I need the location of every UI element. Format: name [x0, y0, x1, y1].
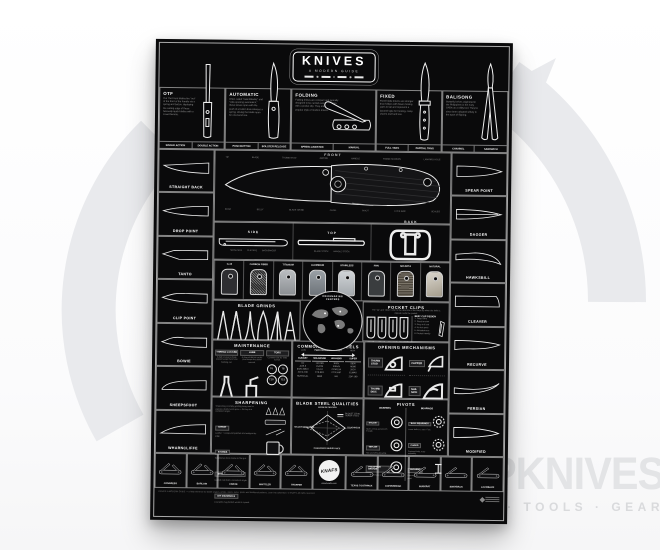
blade-silhouette-icon	[162, 193, 210, 229]
pivot-item-icon	[390, 416, 403, 429]
grind-cross-section-icon	[256, 310, 270, 342]
knife-type-illustration-icon	[315, 96, 373, 137]
slipjoint-knife-icon	[474, 458, 501, 487]
view-illustration-icon	[295, 236, 369, 250]
anatomy-label: EDGE	[225, 209, 231, 211]
pattern-label: SWAYBACK	[450, 486, 463, 489]
blade-shape-label: RECURVE	[467, 363, 487, 367]
blade-shape-cell: HAWKSBILL	[450, 239, 507, 283]
knife-type-panel: AUTOMATIC Often called "switchblades" an…	[225, 88, 292, 151]
knives-poster: KNIVES A MODERN GUIDE OTF Out The Front …	[150, 39, 513, 524]
maintenance-item: TORX Common bits for knife screws. T6T8T…	[265, 350, 289, 398]
mechanism-label: NAIL NICK	[408, 386, 420, 396]
view-note: CLIP SIDE	[247, 250, 257, 252]
blade-silhouette-icon	[159, 410, 207, 446]
traditional-patterns-row: CONGRESS BARLOW	[154, 453, 503, 492]
blade-shape-label: SHEEPSFOOT	[170, 403, 198, 407]
steel-names: S30VS35VNCPM-154CTS-XHPM4	[328, 362, 344, 379]
blade-silhouette-icon	[160, 367, 208, 403]
knife-type-tag: SPRING ASSISTED	[292, 144, 333, 150]
pocket-clip-icon	[376, 316, 387, 340]
pattern-label: WHITTLER	[259, 484, 271, 487]
blade-shape-label: DAGGER	[470, 233, 488, 237]
blade-silhouette-icon	[452, 371, 500, 407]
slipjoint-knife-icon	[220, 455, 247, 484]
slipjoint-knife-icon	[157, 454, 184, 483]
knife-type-illustration-icon	[411, 59, 438, 143]
pattern-cell: CANOE	[218, 454, 250, 489]
steel-names: 14C28N154CMVG-10CTS-BD1N690	[312, 362, 328, 379]
blade-shape-cell: CLEAVER	[449, 283, 506, 327]
fine-print: KNIVES: A MODERN GUIDE — a field referen…	[158, 491, 499, 507]
knife-type-illustration-icon	[194, 56, 221, 140]
blade-shape-cell: WHARNCLIFFE	[155, 409, 212, 453]
qualities-radar: EDGE RETENTION TOUGHNESS CORROSION RESIS…	[292, 406, 363, 451]
steel-name: N690	[312, 375, 328, 378]
handle-material-label: STAINLESS	[340, 264, 353, 269]
pocket-clip-icon	[387, 316, 398, 340]
sharpening-rod-icon	[264, 428, 286, 436]
legend-super-steel: SUPER STEEL	[345, 415, 359, 417]
maintenance-item: THREAD LOCKER A dab on pivot & body scre…	[215, 349, 239, 397]
anatomy-label: SCALES	[431, 211, 440, 213]
knife-anatomy-panel: FRONT TIPBLADETHUMB STUDJIMPINGHANDLEFRA…	[214, 150, 452, 225]
axis-toughness: TOUGHNESS	[347, 427, 360, 429]
knife-type-tags: PUSH BUTTON BOLSTER RELEASE	[226, 142, 290, 150]
sharpening-intro: Sharpening is simply grinding away steel…	[215, 406, 260, 414]
blade-shape-label: STRAIGHT BACK	[169, 185, 203, 189]
handle-material-label: TITANIUM	[282, 263, 293, 268]
slipjoint-knife-icon	[283, 455, 310, 484]
view-illustration-icon	[374, 225, 448, 263]
steel-column: SUPER S90VM39020CVELMAXZDP-189	[345, 358, 361, 379]
anatomy-label: PIVOT	[362, 210, 369, 212]
pattern-cell: BARLOW	[186, 453, 218, 488]
pattern-cell: TRAPPER	[281, 454, 313, 489]
blade-silhouette-icon	[452, 414, 500, 450]
knife-type-panel: OTF Out The Front blades fire "out" of t…	[159, 87, 226, 150]
pocket-clip-icon	[365, 316, 376, 340]
anatomy-label: LANYARD HOLE	[424, 159, 441, 161]
steel-qualities-panel: BLADE STEEL QUALITIES EDGE RETENTION TOU…	[291, 398, 364, 456]
grind-cross-section-icon	[283, 310, 297, 342]
cost-arrow: LOW HIGH	[301, 353, 355, 358]
blade-shape-label: TANTO	[178, 272, 192, 276]
blade-shape-label: HAWKSBILL	[466, 276, 490, 280]
blade-shape-label: CLIP POINT	[173, 316, 196, 320]
map-cell: KNIFEMAKINGCENTERS	[300, 301, 362, 342]
torx-sizes: T6T8T10T15	[265, 364, 289, 386]
folding-knife-illustration	[219, 158, 449, 211]
handle-scale-swatch	[397, 271, 414, 297]
knife-type-tags: SPRING ASSISTED MANUAL	[292, 143, 375, 151]
handle-material: FRN	[361, 262, 391, 300]
steel-column: HIGH-END S30VS35VNCPM-154CTS-XHPM4	[328, 358, 344, 379]
patterns-right: TEXAS TOOTHPICK COPPERHEAD	[346, 455, 504, 492]
handle-material: CARBON FIBER	[243, 261, 273, 299]
pivots-panel: PIVOTS WASHERS NYLON Quiet, cheap and	[363, 398, 449, 456]
pattern-cell: LOCKBACK	[472, 457, 504, 492]
handle-scale-swatch	[367, 270, 384, 296]
anatomy-label: FRAME SCREWS	[383, 158, 401, 160]
pattern-cell: WHITTLER	[249, 454, 281, 489]
anatomy-label: TIP	[225, 156, 228, 158]
handle-material: TITANIUM	[273, 261, 303, 299]
slipjoint-knife-icon	[348, 456, 375, 485]
maker-mark-icon	[480, 496, 500, 503]
knife-type-description: Fixed blade knives are stronger than fol…	[380, 100, 414, 117]
pivot-item-icon	[390, 439, 403, 452]
knife-type-tags: CHANNEL SANDWICH	[443, 144, 507, 152]
anatomy-label: HANDLE	[351, 158, 360, 160]
view-note: BACKSPACER	[262, 251, 276, 253]
sharpening-icons	[263, 406, 288, 457]
maintenance-item-name: TORX	[266, 350, 289, 356]
view-label: SIDE	[248, 230, 260, 234]
arrow-low-label: LOW	[301, 350, 306, 352]
blade-shape-cell: BOWIE	[156, 323, 213, 367]
pivot-item-name: BALL BEARINGS	[408, 422, 431, 427]
blade-shape-cell: PERSIAN	[448, 370, 505, 414]
pattern-cell: CONGRESS	[154, 453, 186, 488]
blade-silhouette-icon	[453, 327, 501, 363]
pivot-item: NYLON Quiet, cheap and smooth enough.	[366, 410, 403, 433]
blade-shape-cell: SPEAR POINT	[451, 152, 508, 196]
knife-type-panel: BALISONG Butterfly knives originated in …	[441, 90, 508, 153]
pivot-item-icon	[432, 415, 445, 428]
steel-name: ZDP-189	[345, 376, 361, 379]
knife-type-description: Out The Front blades fire "out" of the f…	[163, 97, 197, 117]
mechanism-label: THUMB DISC	[368, 386, 383, 396]
grind-cross-section-icon	[216, 310, 230, 342]
torx-bit: T15	[278, 376, 288, 386]
knife-view: BACK CLIP SCREWSPOCKET CLIP	[371, 224, 450, 261]
deep-carry-clip-icon	[437, 320, 445, 338]
maintenance-item-name: THREAD LOCKER	[215, 349, 238, 355]
pattern-label: TRAPPER	[291, 485, 302, 488]
maintenance-items: THREAD LOCKER A dab on pivot & body scre…	[215, 349, 290, 397]
blade-shape-label: SPEAR POINT	[465, 189, 493, 193]
blade-shape-label: PERSIAN	[467, 406, 485, 410]
slipjoint-knife-icon	[411, 457, 438, 486]
maintenance-item-name: LUBE	[240, 349, 263, 355]
axis-sharpening-ease: SHARPENING EASE	[294, 427, 314, 429]
mechanism-label: FLIPPER	[408, 360, 425, 367]
blade-shape-label: WHARNCLIFFE	[168, 446, 198, 450]
pivot-item-description: Quiet, cheap and smooth enough.	[366, 428, 390, 433]
blade-shape-cell: DROP POINT	[158, 192, 215, 236]
maintenance-item-description: Common bits for knife screws.	[266, 357, 289, 362]
steel-column-header: SUPER	[345, 358, 361, 362]
blade-grinds-panel: BLADE GRINDS FLAT SCANDI HOLL	[212, 300, 300, 341]
knife-view: SIDE SHOW SIDECLIP SIDEBACKSPACER	[214, 223, 292, 260]
opening-mechanisms-title: OPENING MECHANISMS	[368, 342, 445, 350]
torx-bit: T8	[278, 364, 288, 374]
blade-silhouette-icon	[455, 154, 503, 190]
sharpening-angle-icon	[264, 406, 286, 416]
knife-type-illustration-icon	[260, 57, 287, 141]
knife-type-panel: FOLDING Folding knives are compact and t…	[291, 88, 376, 151]
handle-material-label: FRN	[374, 265, 379, 270]
knafs-logo: KNAFS	[317, 459, 340, 482]
knife-type-panel: FIXED Fixed blade knives are stronger th…	[375, 90, 442, 153]
blade-silhouette-icon	[454, 240, 502, 276]
handle-material: MICARTA	[390, 263, 420, 301]
steel-column-header: BUDGET	[295, 358, 311, 362]
blade-shape-label: DROP POINT	[173, 229, 198, 233]
torx-bit: T10	[266, 375, 276, 385]
maintenance-item: LUBE A drop of thin oil on the pivot kee…	[240, 349, 264, 397]
knife-types-row: OTF Out The Front blades fire "out" of t…	[159, 87, 509, 153]
pivot-item-icon	[432, 438, 445, 451]
handle-material-label: NATURAL	[429, 265, 440, 270]
anatomy-label: CHOIL	[330, 210, 337, 212]
mechanism-icon	[383, 352, 405, 374]
pattern-label: TEXAS TOOTHPICK	[351, 485, 373, 488]
anatomy-label: BELLY	[257, 209, 264, 211]
fine-print-line1: KNIVES: A MODERN GUIDE — a field referen…	[158, 491, 287, 495]
steel-column-header: MID-RANGE	[312, 358, 328, 362]
pocket-clip-icon	[398, 316, 409, 340]
sharpening-panel: SHARPENING Sharpening is simply grinding…	[211, 397, 292, 455]
product-photo: GPKNIVES KNIVES · TOOLS · GEAR KNIVES A …	[0, 0, 660, 550]
pivot-item: BALL BEARINGS Loose balls in a race. Fas…	[408, 411, 445, 432]
blade-silhouette-icon	[455, 197, 503, 233]
handle-material-label: G-10	[227, 263, 232, 268]
maintenance-item-description: A dab on pivot & body screws keeps them …	[215, 356, 238, 364]
blade-silhouette-icon	[161, 280, 209, 316]
knife-type-tag: FULL TANG	[376, 145, 408, 151]
axis-corrosion-resistance: CORROSION RESISTANCE	[314, 448, 341, 450]
poster-subtitle: A MODERN GUIDE	[302, 69, 367, 74]
pattern-cell: SWAYBACK	[440, 456, 472, 491]
opening-mechanism: FLIPPER	[408, 352, 445, 376]
handle-scale-swatch	[426, 271, 443, 297]
handle-scale-swatch	[250, 269, 267, 295]
pattern-cell: TEXAS TOOTHPICK	[346, 455, 378, 490]
knife-type-tag: SINGLE ACTION	[160, 142, 192, 148]
slipjoint-knife-icon	[380, 457, 407, 486]
view-notes: SHOW SIDECLIP SIDEBACKSPACER	[230, 250, 276, 253]
anatomy-label: BLADE GRIND	[289, 209, 304, 211]
pattern-label: CANOE	[229, 484, 237, 487]
pivot-item-description: Loose balls in a race. Fast.	[408, 429, 432, 432]
knife-type-tags: SINGLE ACTION DOUBLE ACTION	[160, 141, 224, 149]
pattern-cell: MUSKRAT	[409, 456, 441, 491]
pivot-item-name: CAGED	[408, 443, 421, 448]
anatomy-label: THUMB STUD	[282, 157, 296, 159]
handle-scale-swatch	[221, 269, 238, 295]
knife-views-panel: SIDE SHOW SIDECLIP SIDEBACKSPACER TOP BL…	[213, 222, 450, 263]
view-note: SHOW SIDE	[230, 250, 242, 252]
handle-material-label: CARBON FIBER	[250, 263, 268, 268]
slipjoint-knife-icon	[251, 455, 278, 484]
slipjoint-knife-icon	[443, 457, 470, 486]
opening-mechanism: THUMB STUD	[368, 352, 405, 376]
blade-shape-cell: MODIFIED	[448, 413, 505, 457]
knife-type-tag: BOLSTER RELEASE	[257, 143, 290, 149]
grind-cross-section-icon	[230, 310, 244, 342]
steel-column-header: HIGH-END	[329, 358, 345, 362]
blade-shape-cell: CLIP POINT	[156, 279, 213, 323]
knife-type-description: Often called "switchblades" and "side-op…	[229, 98, 263, 118]
blade-shape-cell: TANTO	[157, 236, 214, 280]
view-notes: BLADE STOCKHANDLE STOCK	[314, 251, 350, 253]
grind-cross-section-icon	[243, 310, 257, 342]
pocket-clips-panel: POCKET CLIPS The "up" and "down" refer t…	[362, 301, 449, 342]
blade-shape-label: BOWIE	[177, 359, 191, 363]
view-illustration-icon	[216, 235, 290, 250]
knafs-badge-cell: KNAFS www.knafs.com	[312, 455, 346, 490]
mechanism-label: THUMB STUD	[368, 358, 383, 368]
badge-ornament	[302, 75, 367, 78]
patterns-left: CONGRESS BARLOW	[154, 453, 312, 490]
blade-shape-cell: DAGGER	[451, 196, 508, 240]
mechanism-icon	[425, 353, 445, 373]
handle-material: NATURAL	[419, 263, 449, 301]
knife-type-tags: FULL TANG PARTIAL TANG	[376, 144, 440, 152]
knafs-brand: KNAFS	[321, 467, 338, 474]
knife-type-tag: CHANNEL	[443, 145, 475, 151]
handle-material: G-10	[214, 261, 244, 299]
view-note: HANDLE STOCK	[334, 251, 350, 253]
pivot-item: CAGED Captured balls, easy assembly.	[408, 433, 445, 456]
knife-type-tag: SANDWICH	[474, 146, 507, 152]
slipjoint-knife-icon	[188, 454, 215, 483]
pattern-label: BARLOW	[197, 483, 207, 486]
fine-print-line2: © KNAFS. All rights reserved.	[288, 492, 315, 494]
blade-shape-cell: SHEEPSFOOT	[155, 366, 212, 410]
sharpening-item-name: STROP	[215, 425, 229, 430]
pivots-title: PIVOTS	[366, 399, 445, 407]
radar-legend: BUDGET STEEL SUPER STEEL	[338, 413, 361, 417]
whetstone-icon	[264, 419, 286, 425]
blade-silhouette-icon	[454, 284, 502, 320]
pocket-clips-description: The "up" and "down" refer to the directi…	[366, 309, 447, 315]
poster-title: KNIVES	[302, 55, 367, 68]
blade-shape-cell: STRAIGHT BACK	[158, 149, 215, 193]
knife-type-tag: PARTIAL TANG	[408, 145, 441, 151]
pattern-cell: COPPERHEAD	[377, 456, 409, 491]
maintenance-panel: MAINTENANCE THREAD LOCKER A dab on pivot…	[212, 340, 293, 398]
steel-column: MID-RANGE 14C28N154CMVG-10CTS-BD1N690	[312, 358, 328, 379]
opening-mechanisms-panel: OPENING MECHANISMS THUMB STUD FLIPPER TH…	[364, 341, 450, 399]
maintenance-title: MAINTENANCE	[215, 341, 289, 349]
steel-name: SURGICAL	[295, 375, 311, 378]
anatomy-label: LOCK BAR	[394, 211, 405, 213]
grind-cross-section-icon	[270, 310, 284, 342]
blade-shape-label: CLEAVER	[468, 319, 487, 323]
knife-view: TOP BLADE STOCKHANDLE STOCK	[292, 224, 371, 261]
blade-silhouette-icon	[161, 237, 209, 273]
world-map-icon	[305, 302, 359, 341]
pattern-label: LOCKBACK	[481, 487, 494, 490]
view-note: BLADE STOCK	[314, 251, 329, 253]
anatomy-label: JIMPING	[319, 157, 328, 159]
axis-edge-retention: EDGE RETENTION	[318, 407, 337, 409]
title-badge: KNIVES A MODERN GUIDE	[293, 52, 376, 83]
pattern-label: MUSKRAT	[419, 486, 430, 489]
knife-type-tag: DOUBLE ACTION	[191, 142, 224, 148]
pivot-item: TEFLON Thin and self-lubricating.	[366, 435, 403, 456]
blade-silhouette-icon	[160, 324, 208, 360]
knife-type-tag: PUSH BUTTON	[226, 143, 258, 149]
steel-column: BUDGET D2AUS-88CR13MOV420 & 440SURGICAL	[295, 358, 311, 379]
pattern-label: CONGRESS	[164, 483, 177, 486]
steel-names: S90VM39020CVELMAXZDP-189	[345, 363, 361, 380]
arrow-high-label: HIGH	[350, 350, 355, 352]
steel-names: D2AUS-88CR13MOV420 & 440SURGICAL	[295, 362, 311, 379]
blade-shape-cell: RECURVE	[449, 326, 506, 370]
blade-shape-label: MODIFIED	[466, 450, 486, 454]
steel-name: M4	[328, 376, 344, 379]
sharpening-item-description: Leather + compound polishes and realigns…	[215, 433, 260, 439]
maintenance-item-description: A drop of thin oil on the pivot keeps th…	[240, 356, 263, 364]
handle-material-label: ALUMINUM	[311, 264, 324, 269]
sharpening-item: STROP Leather + compound polishes and re…	[215, 415, 260, 439]
pivot-item-name: NYLON	[366, 421, 379, 426]
steel-columns: BUDGET D2AUS-88CR13MOV420 & 440SURGICAL …	[295, 358, 361, 380]
anatomy-label: BLADE	[252, 157, 259, 159]
sharpening-title: SHARPENING	[215, 398, 287, 406]
blade-silhouette-icon	[162, 150, 210, 186]
blade-shapes-left-column: STRAIGHT BACK DROP POINT TANTO CLIP POIN…	[155, 149, 215, 454]
knife-type-illustration-icon	[477, 60, 504, 144]
view-label: BACK	[404, 220, 417, 224]
blade-shapes-right-column: SPEAR POINT DAGGER HAWKSBILL CLEAVER	[448, 152, 508, 457]
knife-type-description: Butterfly knives originated in the Phili…	[446, 100, 480, 117]
knafs-url: www.knafs.com	[321, 483, 336, 485]
knife-type-tag: MANUAL	[333, 144, 375, 151]
pivot-item-name: TEFLON	[366, 445, 380, 450]
handle-scale-swatch	[279, 269, 296, 295]
torx-bit: T6	[266, 364, 276, 374]
pattern-label: COPPERHEAD	[385, 486, 401, 489]
handle-material-label: MICARTA	[400, 265, 411, 270]
view-label: TOP	[327, 231, 337, 235]
